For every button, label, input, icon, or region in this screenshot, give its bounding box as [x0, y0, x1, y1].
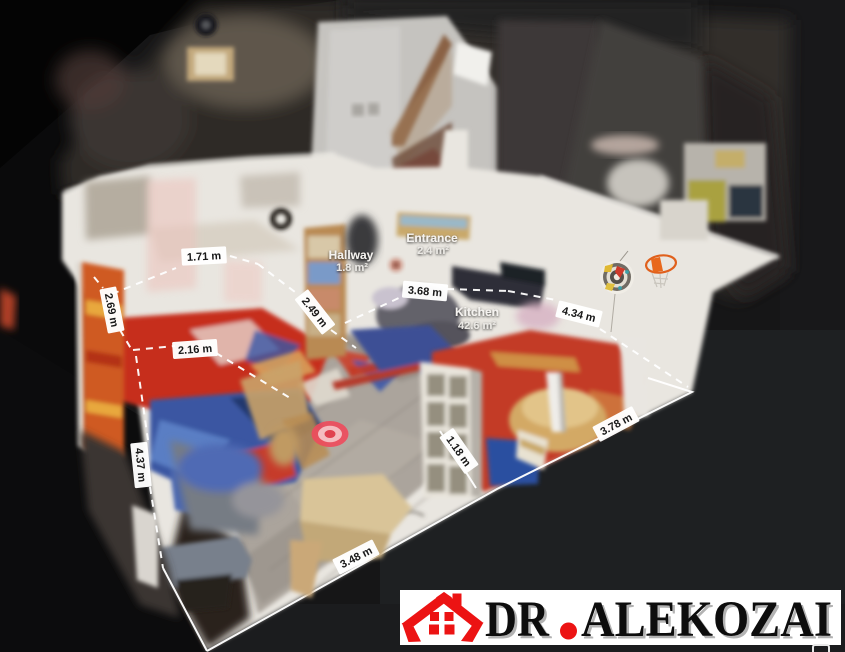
- svg-text:1.8 m²: 1.8 m²: [336, 262, 368, 274]
- svg-text:2.16 m: 2.16 m: [178, 343, 213, 357]
- svg-text:2.4 m²: 2.4 m²: [417, 245, 449, 257]
- svg-text:42.6 m²: 42.6 m²: [458, 320, 496, 332]
- svg-text:Entrance: Entrance: [406, 231, 458, 245]
- svg-text:DR: DR: [485, 592, 550, 648]
- svg-text:ALEKOZAI: ALEKOZAI: [581, 592, 832, 648]
- svg-text:1.71 m: 1.71 m: [187, 250, 222, 264]
- svg-text:Kitchen: Kitchen: [455, 305, 499, 319]
- svg-text:Hallway: Hallway: [329, 248, 374, 262]
